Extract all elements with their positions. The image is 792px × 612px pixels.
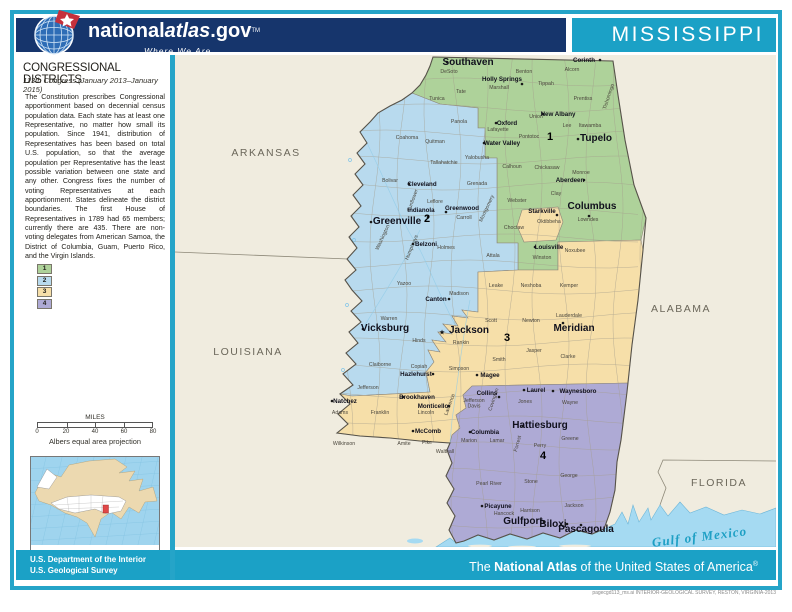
county-label: Coahoma — [396, 135, 419, 141]
county-label: Perry — [534, 443, 547, 449]
scale-bar: MILES 020406080 — [37, 414, 153, 437]
city-label: Hattiesburg — [512, 420, 568, 431]
city-label: Vicksburg — [361, 323, 409, 334]
city-label: Waynesboro — [560, 388, 597, 395]
county-label: Lauderdale — [556, 313, 582, 319]
city-label: McComb — [415, 428, 441, 435]
mississippi-districts-map: DeSotoTunicaTateMarshallBentonTippahAlco… — [175, 55, 776, 547]
county-label: Leake — [489, 283, 503, 289]
county-label: Prentiss — [574, 96, 593, 102]
county-label: Calhoun — [502, 164, 521, 170]
city-label: Southaven — [442, 57, 493, 68]
city-marker — [556, 214, 559, 217]
county-label: Tippah — [538, 81, 554, 87]
brand-italic: atlas — [165, 20, 211, 42]
county-label: Webster — [507, 198, 526, 204]
scale-number: 40 — [92, 429, 99, 435]
county-label: George — [560, 473, 577, 479]
county-label: DeSoto — [440, 69, 457, 75]
city-marker — [432, 373, 435, 376]
city-label: Holly Springs — [482, 76, 522, 83]
scale-tick — [95, 423, 96, 427]
atlas-suffix: of the United States of America — [577, 560, 753, 574]
city-label: Belzoni — [415, 241, 437, 248]
county-label: Pike — [422, 440, 432, 446]
county-label: Attala — [486, 253, 499, 259]
county-label: Amite — [397, 441, 410, 447]
county-label: Oktibbeha — [537, 219, 561, 225]
city-label: Tupelo — [580, 133, 612, 144]
county-label: Pontotoc — [519, 134, 540, 140]
city-label: Canton — [425, 296, 447, 303]
county-label: Tunica — [429, 96, 444, 102]
city-label: Oxford — [497, 120, 518, 127]
legend-item: 1 — [37, 264, 52, 274]
county-label: Wilkinson — [333, 441, 355, 447]
county-label: Monroe — [572, 170, 590, 176]
city-label: Columbus — [568, 201, 617, 212]
county-label: Itawamba — [579, 123, 602, 129]
neighbor-state-label: LOUISIANA — [213, 346, 283, 358]
city-label: Magee — [480, 372, 500, 379]
county-label: Adams — [332, 410, 349, 416]
city-marker — [481, 505, 484, 508]
county-label: Greene — [561, 436, 578, 442]
county-label: Choctaw — [504, 225, 524, 231]
scale-number: 20 — [63, 429, 70, 435]
city-label: Collins — [477, 390, 498, 397]
scale-number: 60 — [121, 429, 128, 435]
legend-swatch-district-4: 4 — [37, 299, 52, 309]
district-number-label: 2 — [424, 213, 430, 225]
county-label: Noxubee — [565, 248, 586, 254]
state-title-band: MISSISSIPPI — [572, 18, 776, 52]
county-label: Hinds — [412, 338, 426, 344]
county-label: Carroll — [456, 215, 471, 221]
county-label: Scott — [485, 318, 497, 324]
scale-number: 80 — [150, 429, 157, 435]
panel-subtitle: 113th Congress (January 2013–January 201… — [23, 76, 169, 94]
panel-description: The Constitution prescribes Congressiona… — [25, 93, 165, 261]
city-marker — [577, 138, 580, 141]
brand-prefix: national — [88, 20, 165, 42]
scale-number: 0 — [35, 429, 38, 435]
registered-mark: ® — [753, 561, 758, 568]
city-label: New Albany — [541, 111, 576, 118]
scale-bar-graphic — [37, 422, 153, 428]
district-number-label: 3 — [504, 332, 510, 344]
print-credit-line: pagecgd113_ms.ai INTERIOR-GEOLOGICAL SUR… — [420, 590, 776, 596]
trademark: TM — [251, 28, 260, 34]
legend-swatch-district-3: 3 — [37, 287, 52, 297]
locator-inset-map — [30, 456, 160, 551]
county-label: Jones — [518, 399, 532, 405]
county-label: Claiborne — [369, 362, 391, 368]
bayou-water — [407, 539, 423, 544]
county-label: Grenada — [467, 181, 487, 187]
neighbor-state-label: FLORIDA — [691, 477, 747, 489]
brand-suffix: .gov — [210, 20, 251, 42]
doi-line: U.S. Department of the Interior — [16, 554, 170, 565]
county-label: Pearl River — [476, 481, 502, 487]
county-label: Warren — [381, 316, 398, 322]
county-label: Jefferson — [357, 385, 378, 391]
county-label: Chickasaw — [534, 165, 559, 171]
city-label: Brookhaven — [399, 394, 435, 401]
scale-tick — [124, 423, 125, 427]
city-label: Greenwood — [445, 205, 479, 212]
city-label: Laurel — [527, 387, 546, 394]
city-label: Monticello — [418, 403, 449, 410]
county-label: Winston — [533, 255, 552, 261]
county-label: Alcorn — [565, 67, 580, 73]
city-label: Water Valley — [484, 140, 521, 147]
city-label: Cleveland — [407, 181, 436, 188]
city-label: Indianola — [407, 207, 435, 214]
county-label: Lamar — [490, 438, 505, 444]
city-marker — [412, 243, 415, 246]
county-label: Lafayette — [487, 127, 508, 133]
county-label: Wayne — [562, 400, 578, 406]
national-atlas-band: The National Atlas of the United States … — [175, 550, 776, 580]
city-label: Meridian — [553, 323, 594, 334]
county-label: Harrison — [520, 508, 540, 514]
county-label: Stone — [524, 479, 538, 485]
county-label: Tallahatchie — [430, 160, 458, 166]
county-label: Lowndes — [578, 217, 599, 223]
usgs-credit-band: U.S. Department of the Interior U.S. Geo… — [16, 550, 170, 580]
county-label: Quitman — [425, 139, 445, 145]
county-label: Jackson — [564, 503, 583, 509]
county-label: Copiah — [411, 364, 428, 370]
national-atlas-logo-icon — [30, 9, 82, 61]
scale-numbers: 020406080 — [37, 429, 153, 437]
city-label: Gulfport — [503, 516, 543, 527]
city-marker — [588, 215, 591, 218]
city-label: Aberdeen — [556, 177, 585, 184]
county-label: Clay — [551, 191, 562, 197]
capital-star-icon: ★ — [439, 329, 445, 337]
district-legend: 1234 — [37, 264, 52, 310]
city-label: Greenville — [373, 216, 422, 227]
county-label: Holmes — [437, 245, 455, 251]
county-label: Yalobusha — [465, 155, 489, 161]
city-label: Louisville — [535, 244, 564, 251]
scale-units-label: MILES — [37, 414, 153, 421]
city-marker — [448, 298, 451, 301]
county-label: Newton — [522, 318, 540, 324]
legend-item: 2 — [37, 276, 52, 286]
city-label: Pascagoula — [558, 524, 614, 535]
atlas-name: National Atlas — [494, 560, 577, 574]
city-label: Corinth — [573, 57, 595, 64]
county-label: Walthall — [436, 449, 454, 455]
city-marker — [523, 389, 526, 392]
scale-tick — [67, 423, 68, 427]
county-label: Jasper — [526, 348, 542, 354]
county-label: Lee — [563, 123, 572, 129]
county-label: Yazoo — [397, 281, 411, 287]
county-label: Benton — [516, 69, 533, 75]
city-label: Columbia — [471, 429, 500, 436]
county-label: Smith — [492, 357, 505, 363]
city-marker — [476, 374, 479, 377]
district-number-label: 1 — [547, 131, 553, 143]
district-number-label: 4 — [540, 450, 547, 462]
county-label: Bolivar — [382, 178, 398, 184]
projection-note: Albers equal area projection — [30, 437, 160, 446]
county-label: Tate — [456, 89, 466, 95]
mississippi-highlight — [103, 505, 109, 513]
county-label: Kemper — [560, 283, 578, 289]
legend-item: 3 — [37, 287, 52, 297]
county-label: Marion — [461, 438, 477, 444]
county-label: Madison — [449, 291, 469, 297]
city-label: Natchez — [333, 398, 357, 405]
neighbor-state-label: ARKANSAS — [231, 147, 300, 159]
county-label: Leflore — [427, 199, 443, 205]
city-marker — [599, 59, 602, 62]
county-label: Clarke — [561, 354, 576, 360]
city-marker — [521, 83, 524, 86]
county-label: Simpson — [449, 366, 469, 372]
legend-item: 4 — [37, 299, 52, 309]
county-label: Panola — [451, 119, 467, 125]
city-marker — [412, 430, 415, 433]
county-label: Neshoba — [521, 283, 542, 289]
county-label: Rankin — [453, 340, 469, 346]
county-label: Lincoln — [418, 410, 435, 416]
legend-swatch-district-2: 2 — [37, 276, 52, 286]
city-marker — [552, 390, 555, 393]
usgs-line: U.S. Geological Survey — [16, 565, 170, 576]
city-label: Starkville — [528, 208, 556, 215]
legend-swatch-district-1: 1 — [37, 264, 52, 274]
city-label: Hazlehurst — [400, 371, 432, 378]
atlas-prefix: The — [469, 560, 494, 574]
county-label: Marshall — [489, 85, 509, 91]
county-label: Franklin — [371, 410, 390, 416]
neighbor-state-label: ALABAMA — [651, 303, 711, 315]
city-label: Picayune — [484, 503, 512, 510]
city-marker — [498, 396, 501, 399]
national-atlas-map-page: MISSISSIPPI nationalatlas.govTM Where We… — [0, 0, 792, 612]
city-label: Jackson — [449, 325, 489, 336]
page-title: MISSISSIPPI — [572, 18, 776, 52]
